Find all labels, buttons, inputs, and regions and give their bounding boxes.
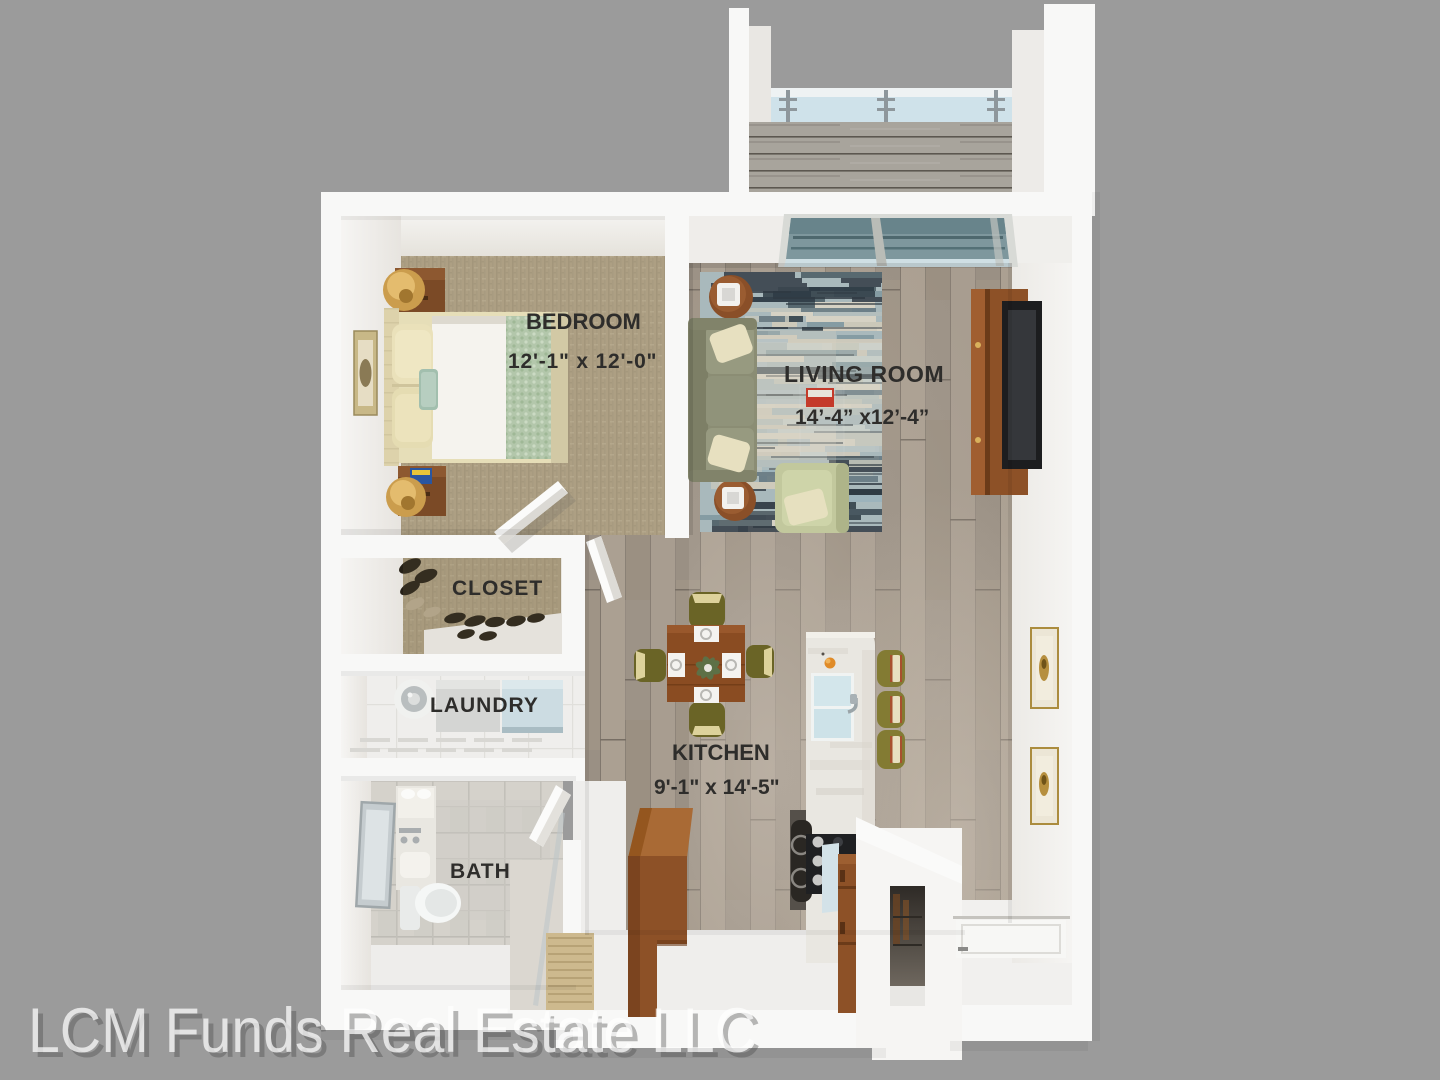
svg-text:BEDROOM: BEDROOM — [526, 309, 641, 334]
svg-text:BATH: BATH — [450, 860, 511, 883]
svg-text:14’-4” x12’-4”: 14’-4” x12’-4” — [795, 406, 929, 429]
svg-text:LCM Funds Real Estate LLC: LCM Funds Real Estate LLC — [28, 996, 756, 1066]
svg-text:CLOSET: CLOSET — [452, 577, 543, 600]
svg-text:LIVING ROOM: LIVING ROOM — [784, 361, 944, 387]
svg-text:KITCHEN: KITCHEN — [672, 740, 770, 765]
svg-text:LAUNDRY: LAUNDRY — [430, 694, 539, 717]
svg-text:12'-1" x 12'-0": 12'-1" x 12'-0" — [508, 350, 657, 373]
svg-text:9'-1" x 14'-5": 9'-1" x 14'-5" — [654, 776, 780, 799]
